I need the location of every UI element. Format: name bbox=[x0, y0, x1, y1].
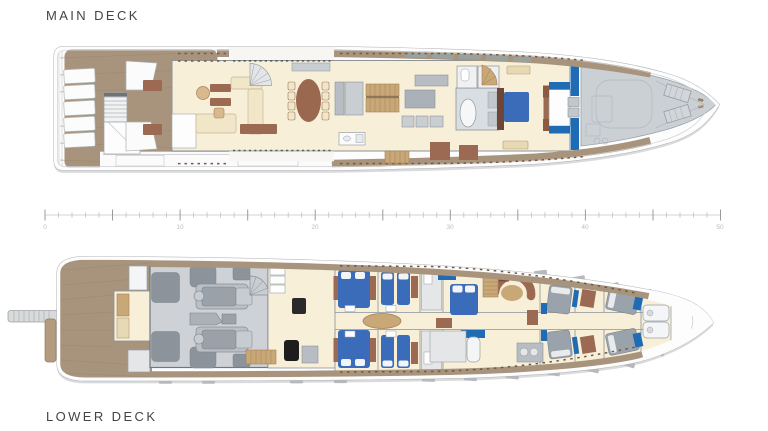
svg-text:10: 10 bbox=[176, 224, 184, 231]
svg-text:20: 20 bbox=[311, 224, 319, 231]
svg-text:0: 0 bbox=[43, 224, 47, 231]
svg-text:50: 50 bbox=[716, 224, 724, 231]
svg-text:LOWER DECK: LOWER DECK bbox=[46, 409, 157, 424]
svg-text:40: 40 bbox=[581, 224, 589, 231]
svg-text:MAIN DECK: MAIN DECK bbox=[46, 8, 140, 23]
svg-text:30: 30 bbox=[446, 224, 454, 231]
